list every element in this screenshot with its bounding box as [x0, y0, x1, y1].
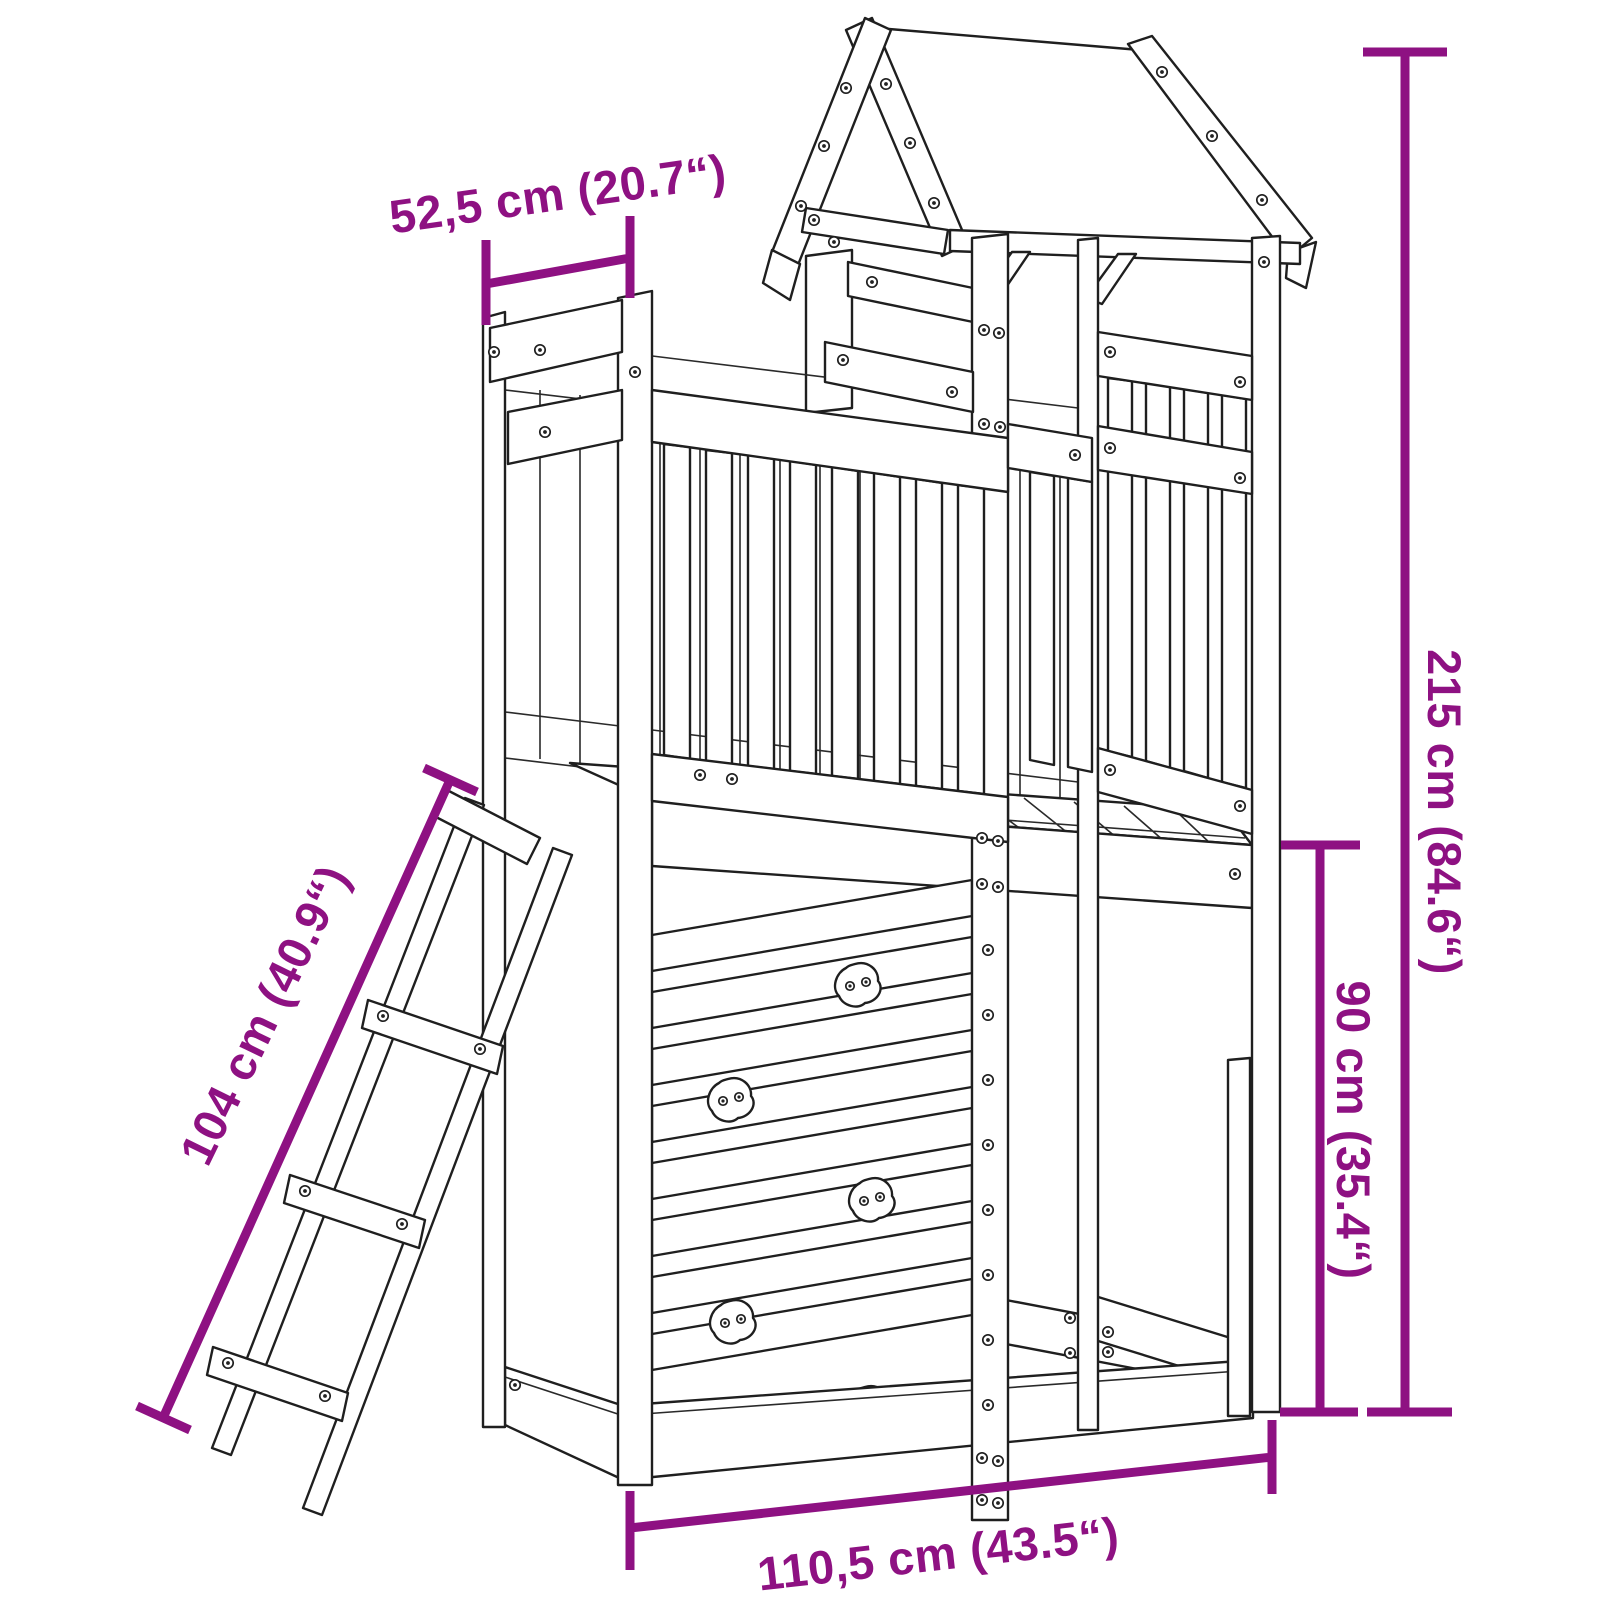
rails-and-slats — [490, 300, 1252, 842]
dimension-diagram-canvas: 52,5 cm (20.7“) 215 cm (84.6“) 90 cm (35… — [0, 0, 1600, 1600]
side-top-rail — [490, 300, 622, 382]
side-second-rail — [508, 390, 622, 464]
post-rear-left — [483, 312, 505, 1427]
gable-base-rail — [848, 262, 973, 322]
dimension-label-front-width: 110,5 cm (43.5“) — [755, 1507, 1122, 1600]
post-right — [1252, 236, 1280, 1412]
dimension-platform-height: 90 cm (35.4“) — [1280, 845, 1380, 1412]
climbing-hold — [835, 963, 881, 1006]
dimension-label-ladder-length: 104 cm (40.9“) — [169, 857, 359, 1173]
dimension-side-depth: 52,5 cm (20.7“) — [386, 144, 729, 325]
dimension-label-total-height: 215 cm (84.6“) — [1418, 649, 1471, 975]
climbing-hold — [708, 1078, 754, 1121]
post-right-lower — [1228, 1058, 1250, 1416]
gable-support-stud — [806, 250, 852, 413]
climbing-hold — [849, 1178, 895, 1221]
play-tower-drawing — [207, 18, 1316, 1520]
play-tower-dimension-drawing: 52,5 cm (20.7“) 215 cm (84.6“) 90 cm (35… — [0, 0, 1600, 1600]
post-rear-middle — [1078, 238, 1098, 1430]
base-board-front — [643, 1360, 1253, 1478]
base-board-side — [505, 1367, 630, 1483]
dimension-ladder-length: 104 cm (40.9“) — [137, 768, 477, 1430]
dimension-label-platform-height: 90 cm (35.4“) — [1327, 980, 1380, 1279]
climbing-hold — [710, 1300, 756, 1343]
post-front-left — [618, 291, 652, 1485]
climbing-wall — [652, 880, 972, 1430]
dimension-label-side-depth: 52,5 cm (20.7“) — [386, 144, 729, 244]
